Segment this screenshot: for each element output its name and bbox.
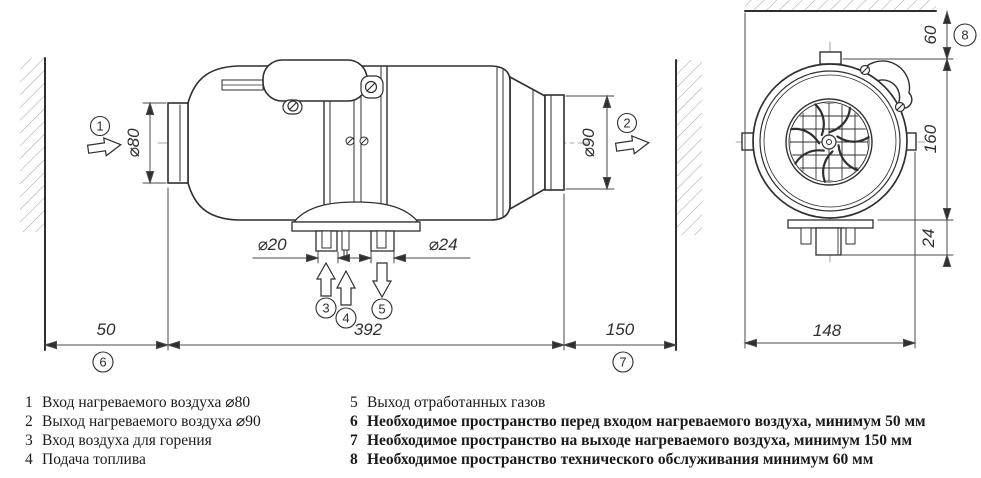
fuel-pump-pipe (816, 228, 841, 255)
callout-8: 8 (954, 24, 976, 46)
bottom-flange-front (788, 220, 873, 255)
ceiling-wall (745, 0, 936, 11)
legend-right-column: 5 Выход отработанных газов 6 Необходимое… (350, 393, 975, 469)
legend-item-number: 7 (350, 431, 367, 450)
svg-text:2: 2 (623, 116, 630, 131)
callout-5: 5 (372, 263, 392, 319)
legend-item-7: 7 Необходимое пространство на выходе наг… (350, 431, 975, 450)
dim-148-label: 148 (813, 321, 842, 340)
legend-item-text: Выход нагреваемого воздуха ⌀90 (42, 412, 261, 431)
dim-60-label: 60 (921, 25, 940, 44)
legend-item-text: Необходимое пространство технического об… (367, 450, 873, 469)
fuel-pipe (342, 231, 349, 250)
legend-item-5: 5 Выход отработанных газов (350, 393, 975, 412)
legend-item-number: 1 (25, 393, 42, 412)
legend-left-column: 1 Вход нагреваемого воздуха ⌀80 2 Выход … (25, 393, 345, 469)
legend-item-1: 1 Вход нагреваемого воздуха ⌀80 (25, 393, 345, 412)
callout-3: 3 (316, 263, 336, 318)
top-mount-tab (820, 52, 841, 64)
svg-text:7: 7 (619, 355, 626, 370)
flow-arrow-right-icon (87, 136, 122, 158)
legend-item-number: 8 (350, 450, 367, 469)
legend-item-number: 5 (350, 393, 367, 412)
legend-item-3: 3 Вход воздуха для горения (25, 431, 345, 450)
legend-item-number: 3 (25, 431, 42, 450)
legend-item-text: Вход воздуха для горения (42, 431, 212, 450)
legend-item-6: 6 Необходимое пространство перед входом … (350, 412, 975, 431)
legend-item-text: Вход нагреваемого воздуха ⌀80 (42, 393, 250, 412)
heater-front-face (753, 64, 907, 218)
right-wall (676, 60, 702, 350)
legend-item-text: Подача топлива (42, 450, 146, 469)
front-view: 60 160 24 148 8 (736, 0, 976, 348)
dim-24-label: 24 (919, 229, 938, 249)
svg-text:6: 6 (99, 355, 106, 370)
fan-hub (822, 135, 836, 149)
dim-50-label: 50 (97, 320, 116, 339)
flow-arrow-right-icon (615, 134, 650, 156)
svg-text:4: 4 (342, 311, 349, 326)
dim-392-label: 392 (354, 320, 383, 339)
dim-d90-label: ⌀90 (579, 128, 598, 158)
legend-item-number: 2 (25, 412, 42, 431)
drawing-canvas: ⌀80 ⌀90 ⌀20 ⌀24 (0, 0, 981, 392)
dim-d20-label: ⌀20 (257, 235, 287, 254)
callout-2: 2 (615, 114, 650, 157)
dim-d24-label: ⌀24 (428, 235, 457, 254)
flow-arrow-up-icon (317, 263, 335, 296)
left-wall (20, 58, 45, 350)
legend-item-4: 4 Подача топлива (25, 450, 345, 469)
svg-text:3: 3 (322, 301, 329, 316)
svg-text:8: 8 (961, 28, 968, 43)
legend-item-2: 2 Выход нагреваемого воздуха ⌀90 (25, 412, 345, 431)
side-view: ⌀80 ⌀90 ⌀20 ⌀24 (20, 58, 702, 372)
legend-item-text: Выход отработанных газов (367, 393, 545, 412)
outlet-cone (510, 77, 545, 209)
svg-text:5: 5 (378, 302, 385, 317)
svg-text:1: 1 (96, 119, 103, 134)
heater-installation-drawing: ⌀80 ⌀90 ⌀20 ⌀24 (0, 0, 981, 478)
dim-d80-label: ⌀80 (124, 128, 143, 158)
legend-item-number: 6 (350, 412, 367, 431)
dim-160-label: 160 (921, 124, 940, 153)
bottom-flange-side (292, 202, 420, 257)
inlet-pipe (168, 103, 188, 183)
dim-150-label: 150 (606, 320, 635, 339)
flow-arrow-up-icon (337, 271, 355, 305)
flow-arrow-down-icon (373, 263, 391, 297)
legend-item-text: Необходимое пространство на выходе нагре… (367, 431, 912, 450)
legend-item-text: Необходимое пространство перед входом на… (367, 412, 926, 431)
outlet-pipe (545, 95, 564, 190)
legend-item-number: 4 (25, 450, 42, 469)
callout-1: 1 (87, 117, 122, 159)
legend-item-8: 8 Необходимое пространство технического … (350, 450, 975, 469)
callout-7: 7 (613, 352, 633, 372)
callout-6: 6 (93, 352, 113, 372)
callout-4: 4 (336, 271, 356, 328)
